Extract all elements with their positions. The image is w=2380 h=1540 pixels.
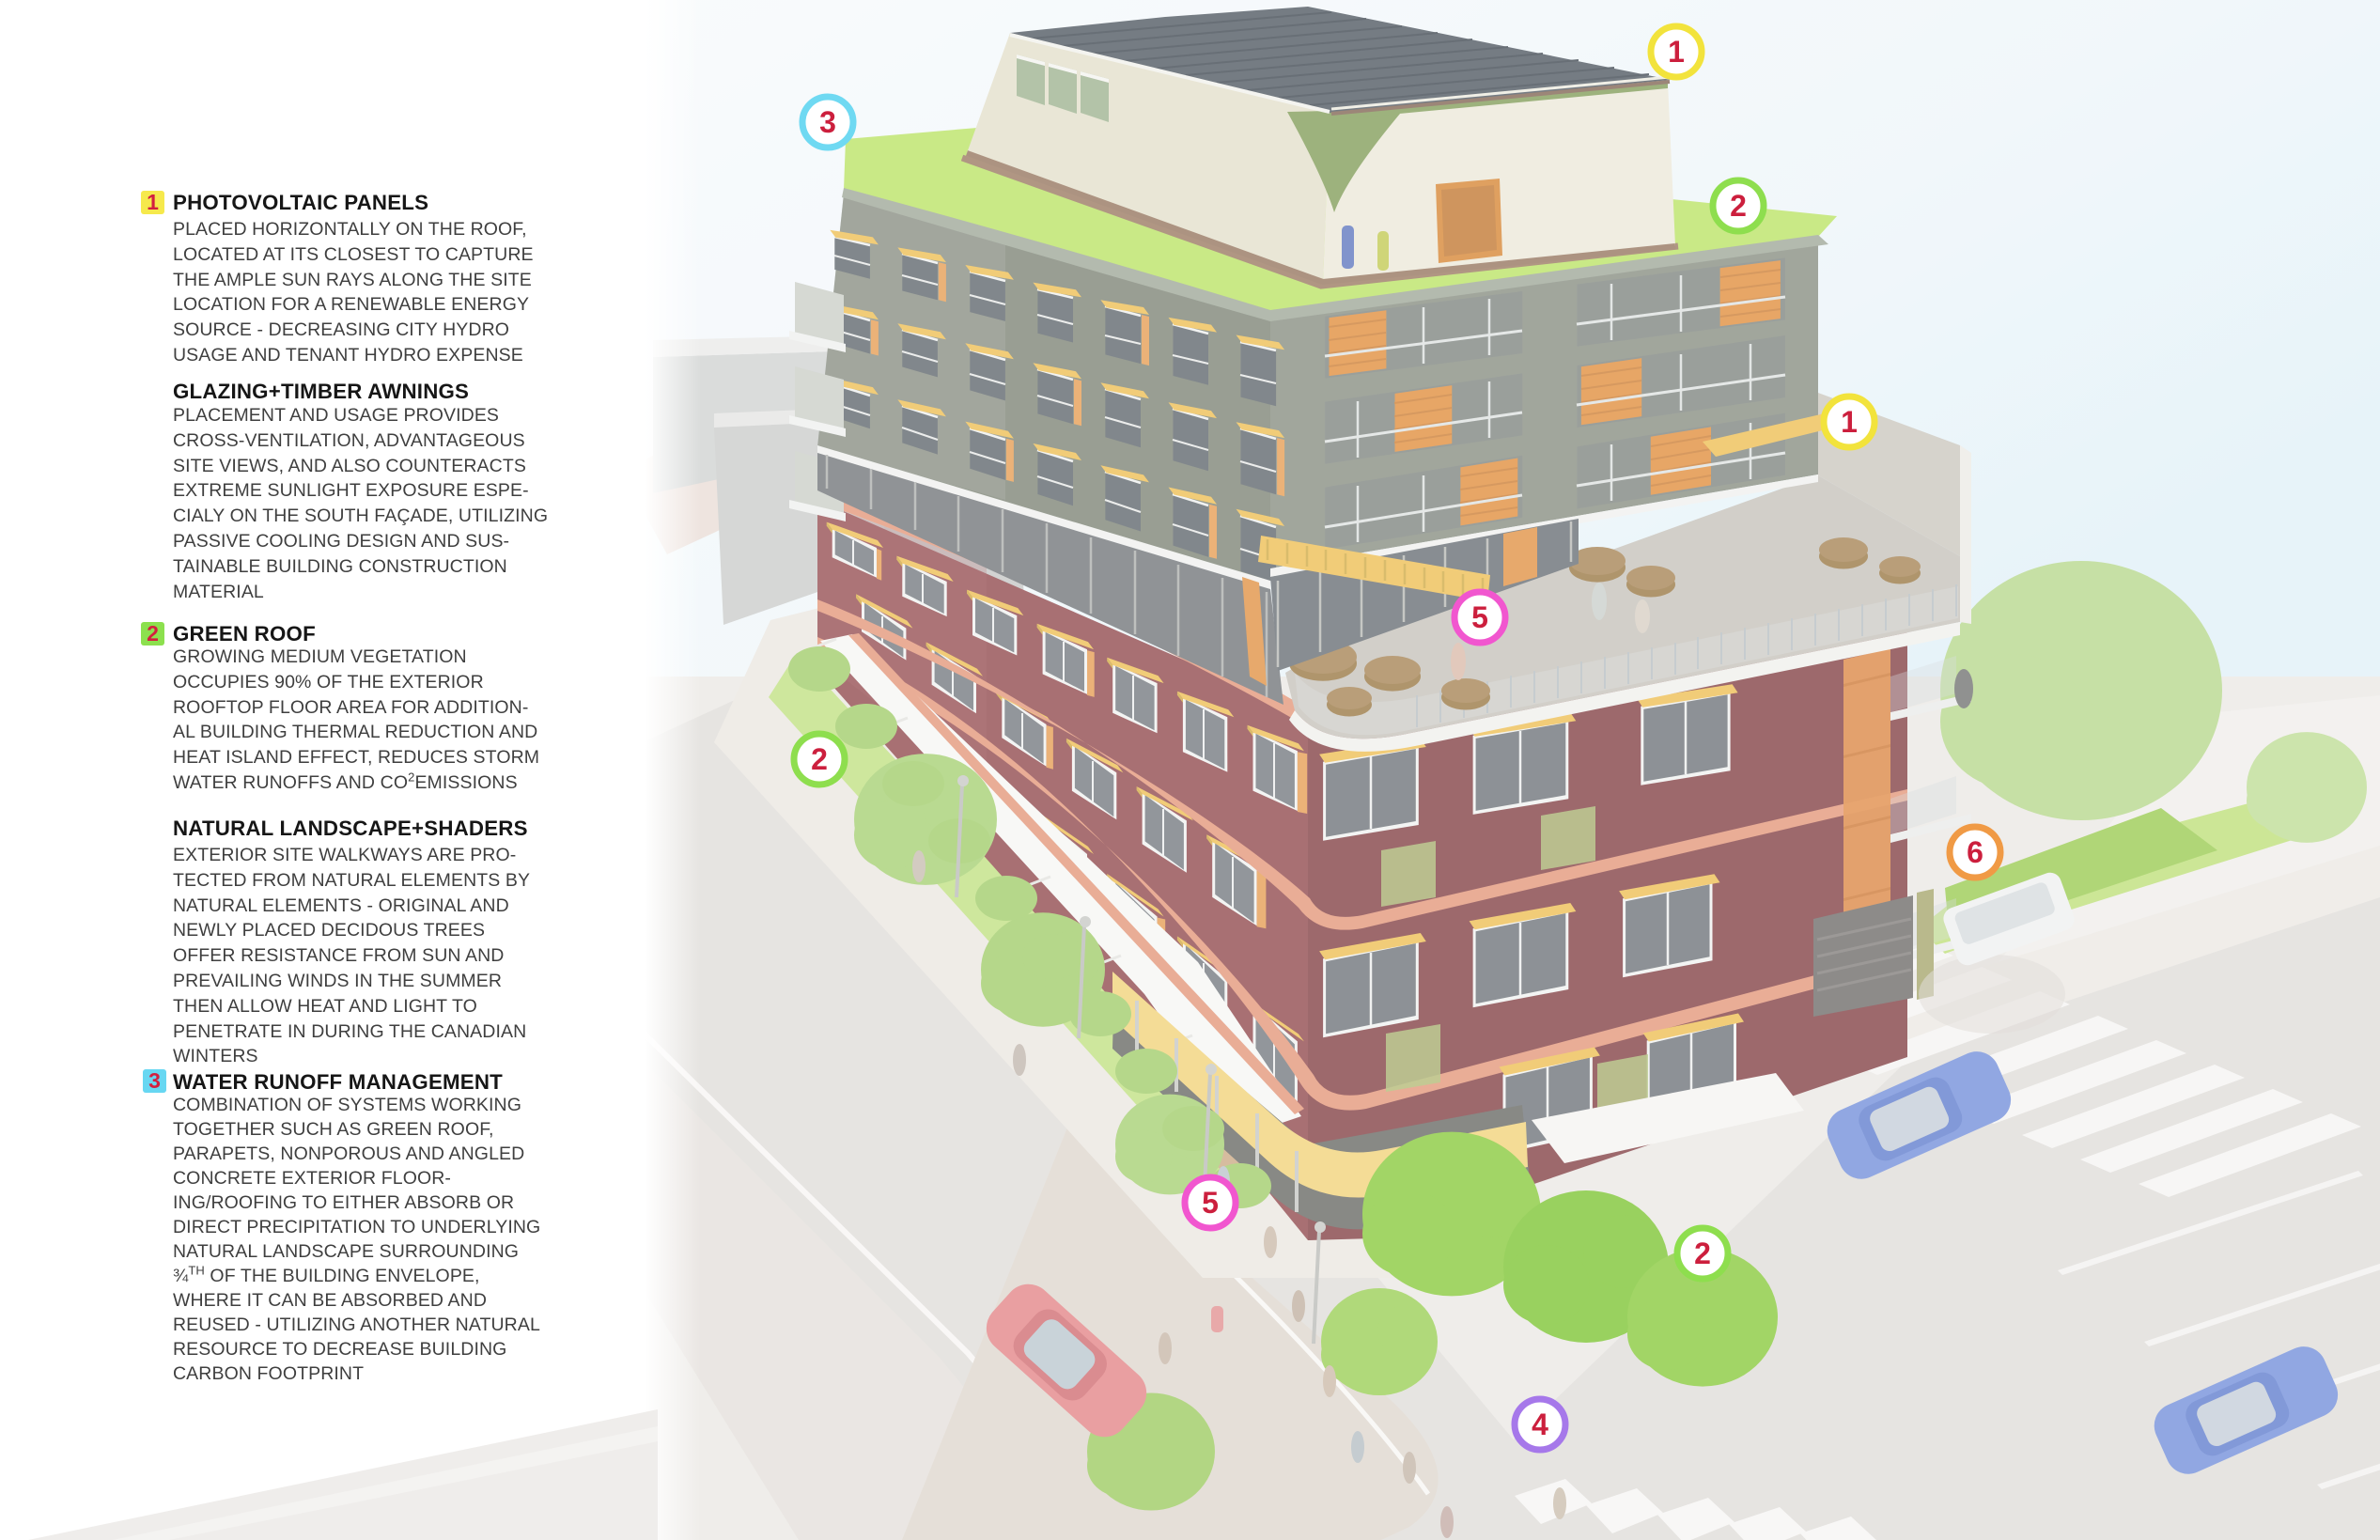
svg-text:2: 2 [1694,1237,1711,1270]
svg-text:5: 5 [1202,1186,1219,1220]
svg-text:4: 4 [1532,1408,1548,1441]
svg-text:1: 1 [1668,35,1685,69]
svg-text:6: 6 [1967,835,1983,869]
svg-text:1: 1 [1841,405,1858,439]
svg-text:3: 3 [819,105,836,139]
svg-text:2: 2 [1730,189,1747,223]
svg-text:5: 5 [1471,600,1488,634]
svg-text:2: 2 [811,742,828,776]
